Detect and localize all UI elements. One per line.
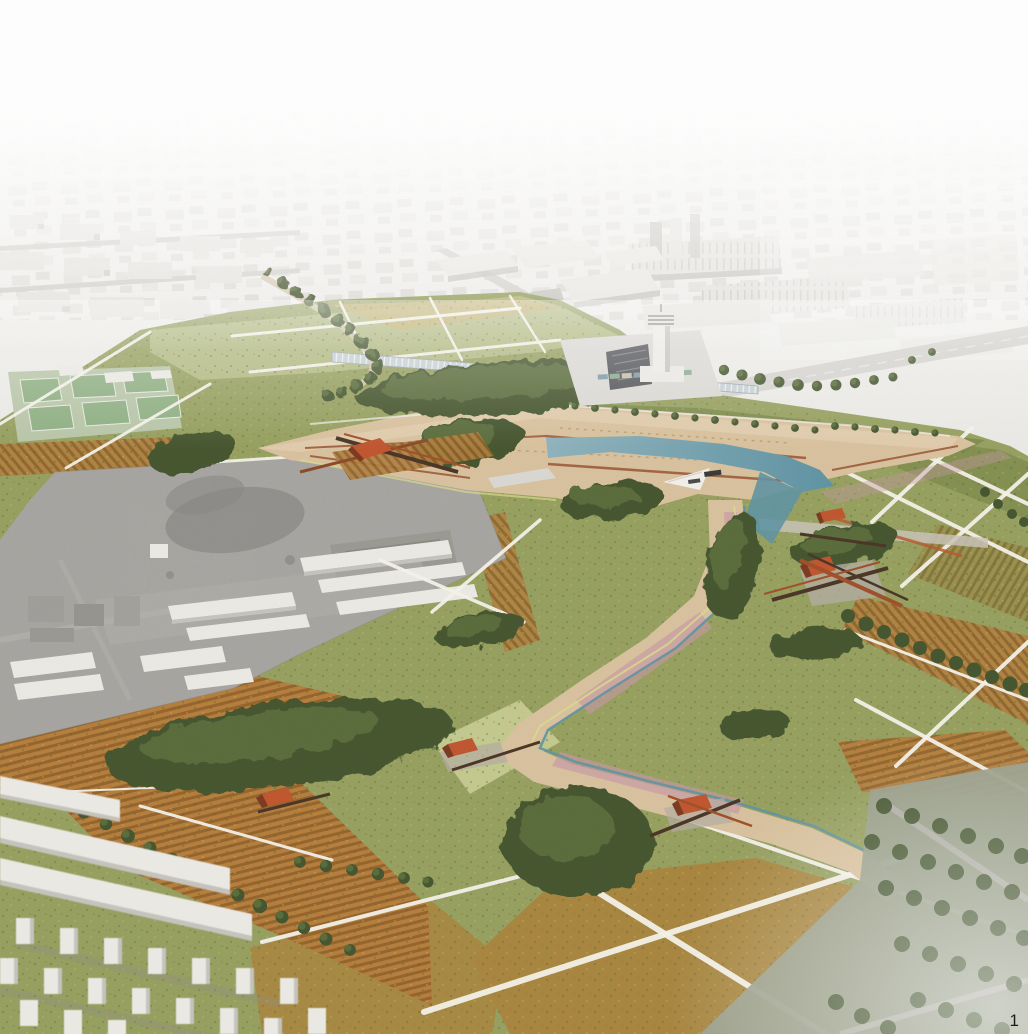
masterplan-rendering: 1 xyxy=(0,0,1028,1034)
film-grain xyxy=(0,0,1028,1034)
page-number: 1 xyxy=(1010,1012,1019,1029)
aerial-scene xyxy=(0,0,1028,1034)
